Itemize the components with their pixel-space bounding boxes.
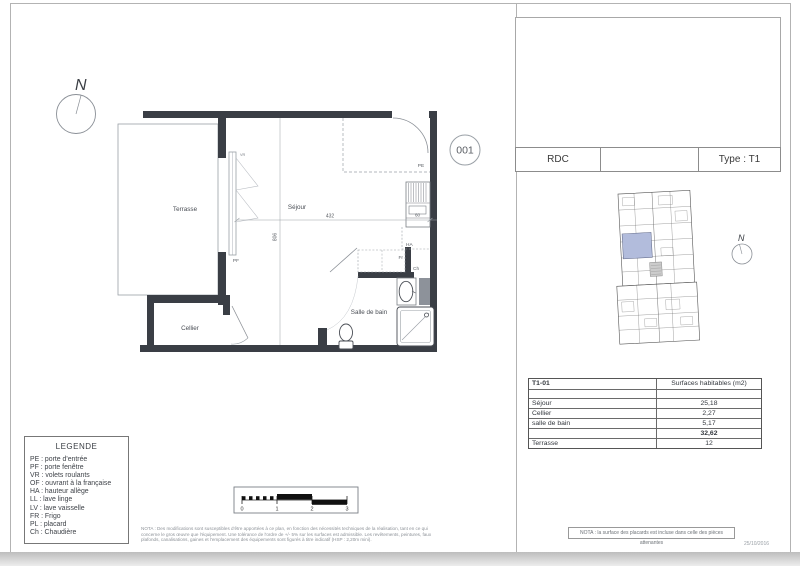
legend-title: LEGENDE — [25, 442, 128, 451]
legend-item: OF : ouvrant à la française — [30, 480, 128, 488]
surfaces-total-row: 32,62 — [529, 428, 761, 438]
legend-box: LEGENDE PE : porte d'entrée PF : porte f… — [24, 436, 129, 544]
surfaces-header: Surfaces habitables (m2) — [656, 379, 761, 389]
nota-left: NOTA : Des modifications sont susceptibl… — [141, 526, 447, 543]
title-level: RDC — [516, 148, 600, 171]
site-north-label: N — [738, 233, 745, 243]
row-value: 12 — [656, 439, 761, 448]
legend-item: LL : lave linge — [30, 496, 128, 504]
floor-plan: PE PF VR 60 HA — [118, 111, 437, 352]
scale-tick-0: 0 — [240, 507, 243, 513]
bathroom-door-leaf — [330, 248, 357, 272]
unit-number-bubble: 001 — [450, 135, 480, 165]
ha-tag: HA — [406, 242, 413, 248]
row-value: 2,27 — [656, 409, 761, 418]
bathroom-door-swing — [327, 276, 358, 330]
legend-item: LV : lave vaisselle — [30, 505, 128, 513]
window-pf: PF VR — [229, 152, 258, 264]
row-label: Séjour — [529, 399, 656, 408]
legend-item: PF : porte fenêtre — [30, 464, 128, 472]
vr-tag: VR — [240, 153, 246, 157]
bathroom-duct — [419, 278, 430, 305]
north-arrow: N — [57, 77, 96, 134]
nota-right: NOTA : la surface des placards est inclu… — [568, 527, 735, 539]
site-plan — [612, 190, 700, 344]
dim-depth: 806 — [273, 233, 279, 242]
title-type: Type : T1 — [698, 148, 780, 171]
surfaces-table: T1-01 Surfaces habitables (m2) Séjour 25… — [528, 378, 762, 449]
scale-tick-3: 3 — [345, 507, 348, 513]
surfaces-total: 32,62 — [656, 429, 761, 438]
toilet — [339, 324, 353, 349]
row-label: Cellier — [529, 409, 656, 418]
legend-items: PE : porte d'entrée PF : porte fenêtre V… — [30, 456, 128, 537]
row-label: Terrasse — [529, 439, 656, 448]
surfaces-row-terrasse: Terrasse 12 — [529, 438, 761, 448]
ch-tag: Ch — [413, 266, 419, 272]
logo-box — [515, 17, 781, 148]
scale-bar: 0 1 2 3 — [234, 487, 358, 513]
room-label-terrasse: Terrasse — [173, 206, 198, 213]
pf-tag: PF — [233, 258, 239, 264]
page-edge-shadow — [0, 552, 800, 566]
legend-item: PL : placard — [30, 521, 128, 529]
sink-width-tag: 60 — [415, 213, 421, 218]
legend-item: HA : hauteur allège — [30, 488, 128, 496]
surfaces-unit-id: T1-01 — [529, 379, 656, 389]
room-label-cellier: Cellier — [181, 325, 199, 332]
highlighted-unit — [622, 232, 652, 258]
surfaces-row-salle-de-bain: salle de bain 5,17 — [529, 418, 761, 428]
scale-tick-2: 2 — [310, 507, 313, 513]
fr-tag: Fr — [398, 255, 403, 261]
legend-item: Ch : Chaudière — [30, 529, 128, 537]
bathroom — [327, 248, 434, 349]
room-label-sejour: Séjour — [288, 204, 306, 211]
north-label: N — [75, 77, 87, 94]
unit-number: 001 — [456, 145, 474, 157]
pe-tag: PE — [418, 163, 424, 169]
row-value: 5,17 — [656, 419, 761, 428]
row-label: salle de bain — [529, 419, 656, 428]
washbasin — [397, 278, 416, 305]
dim-width: 432 — [326, 214, 335, 220]
site-north-arrow: N — [732, 233, 752, 264]
surfaces-spacer-row — [529, 389, 761, 398]
legend-item: PE : porte d'entrée — [30, 456, 128, 464]
title-block: RDC Type : T1 — [515, 147, 781, 172]
shower — [397, 307, 434, 346]
plan-sheet: N PE — [0, 0, 800, 566]
date-stamp: 25/10/2016 — [744, 541, 769, 547]
terrasse-outline — [118, 124, 218, 295]
legend-item: VR : volets roulants — [30, 472, 128, 480]
entrance-door: PE — [392, 111, 429, 169]
kitchen-zone: 60 HA — [343, 118, 430, 249]
legend-item: FR : Frigo — [30, 513, 128, 521]
scale-tick-1: 1 — [275, 507, 278, 513]
surfaces-row-cellier: Cellier 2,27 — [529, 408, 761, 418]
row-value: 25,18 — [656, 399, 761, 408]
surfaces-header-row: T1-01 Surfaces habitables (m2) — [529, 379, 761, 389]
title-middle — [600, 148, 698, 171]
surfaces-row-sejour: Séjour 25,18 — [529, 398, 761, 408]
room-label-salle-de-bain: Salle de bain — [351, 309, 388, 316]
cellier-door — [231, 306, 248, 344]
